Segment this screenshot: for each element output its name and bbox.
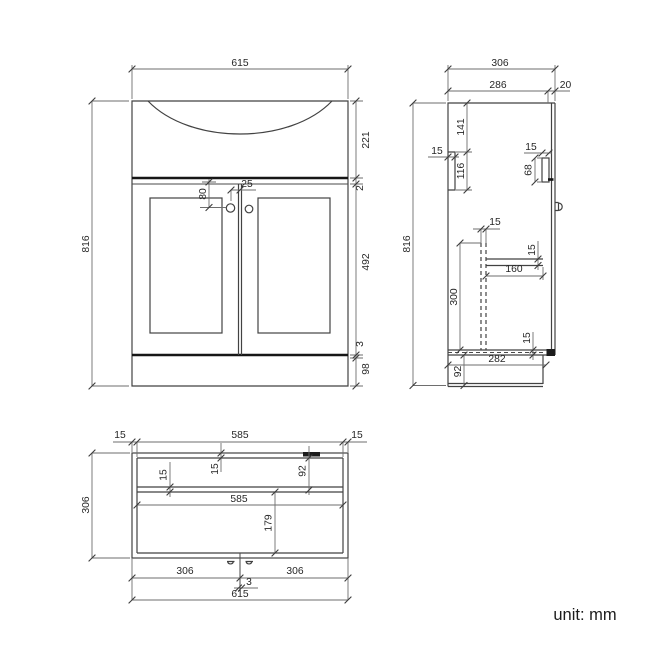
front-cabinet-outline <box>132 101 348 386</box>
dim-plan-door-gap: 3 <box>246 577 252 588</box>
dim-plan-inner-width: 585 <box>230 494 247 505</box>
front-dimension-lines <box>92 65 363 386</box>
dim-side-hinge-inset: 15 <box>525 142 537 153</box>
dim-plan-back-wall: 15 <box>210 463 221 475</box>
plan-knob-right <box>246 562 254 564</box>
dim-side-divider-height: 300 <box>449 288 460 305</box>
dim-front-total-width: 615 <box>231 58 248 69</box>
dim-plan-rail-thickness: 15 <box>159 469 170 481</box>
side-view: 306 286 20 816 141 15 116 15 68 15 300 1… <box>402 58 571 389</box>
dim-side-bracket-height: 116 <box>456 163 467 180</box>
dim-front-plinth-height: 98 <box>361 363 372 375</box>
dim-side-bracket-top-offset: 141 <box>456 118 467 135</box>
dim-plan-total-depth: 306 <box>81 496 92 513</box>
dim-side-plinth-height: 92 <box>453 366 464 378</box>
technical-drawing-page: 615 816 221 2 492 3 98 80 25 <box>0 0 650 650</box>
dim-side-door-thickness: 20 <box>560 80 572 91</box>
dim-plan-right-wall: 15 <box>351 430 363 441</box>
dim-front-handle-drop: 80 <box>198 188 209 200</box>
dim-side-total-depth: 306 <box>491 58 508 69</box>
dim-front-counter-gap: 2 <box>355 185 366 191</box>
dim-side-hinge-height: 68 <box>524 164 535 176</box>
door-gap-lines <box>239 184 242 355</box>
front-view: 615 816 221 2 492 3 98 80 25 <box>81 58 372 389</box>
plan-view: 15 585 15 306 15 15 92 585 179 306 306 3… <box>81 430 367 603</box>
dim-plan-back-section-depth: 92 <box>298 465 309 477</box>
dim-front-door-height: 492 <box>361 253 372 270</box>
dim-plan-left-door-width: 306 <box>176 566 193 577</box>
dim-side-bracket-thickness: 15 <box>431 146 443 157</box>
dim-plan-total-width: 615 <box>231 589 248 600</box>
front-dimension-ticks <box>89 66 360 390</box>
door-bottom-corner <box>547 349 556 356</box>
dim-side-total-height: 816 <box>402 235 413 252</box>
dim-side-cabinet-depth: 286 <box>489 80 506 91</box>
dim-side-bottom-thickness: 15 <box>522 332 533 344</box>
dim-side-shelf-depth: 160 <box>505 264 522 275</box>
dim-front-handle-spacing: 25 <box>241 179 253 190</box>
dim-plan-inner-width-top: 585 <box>231 430 248 441</box>
dim-plan-front-section-depth: 179 <box>264 514 275 531</box>
dim-plan-left-wall: 15 <box>114 430 126 441</box>
unit-label: unit: mm <box>553 606 616 624</box>
dim-side-divider-thickness: 15 <box>489 217 501 228</box>
dim-plan-right-door-width: 306 <box>286 566 303 577</box>
basin-curve <box>148 101 332 134</box>
dim-front-total-height: 816 <box>81 235 92 252</box>
dim-side-shelf-thickness: 15 <box>527 244 538 256</box>
vanity-unit-dimension-drawing: 615 816 221 2 492 3 98 80 25 <box>0 0 650 650</box>
divider-panel <box>481 243 486 350</box>
dim-front-bottom-gap: 3 <box>355 341 366 347</box>
front-face-lines <box>552 103 556 355</box>
dim-side-bottom-depth: 282 <box>488 354 505 365</box>
hinge-bracket <box>542 158 549 182</box>
right-door-panel <box>258 198 330 333</box>
left-door-knob <box>226 204 234 212</box>
plan-knob-left <box>227 562 235 564</box>
dim-front-basin-height: 221 <box>361 131 372 148</box>
right-door-knob <box>245 205 253 213</box>
side-door-knob <box>555 203 562 211</box>
left-door-panel <box>150 198 222 333</box>
side-cabinet-outline <box>448 103 562 387</box>
side-dimension-ticks <box>410 66 559 389</box>
